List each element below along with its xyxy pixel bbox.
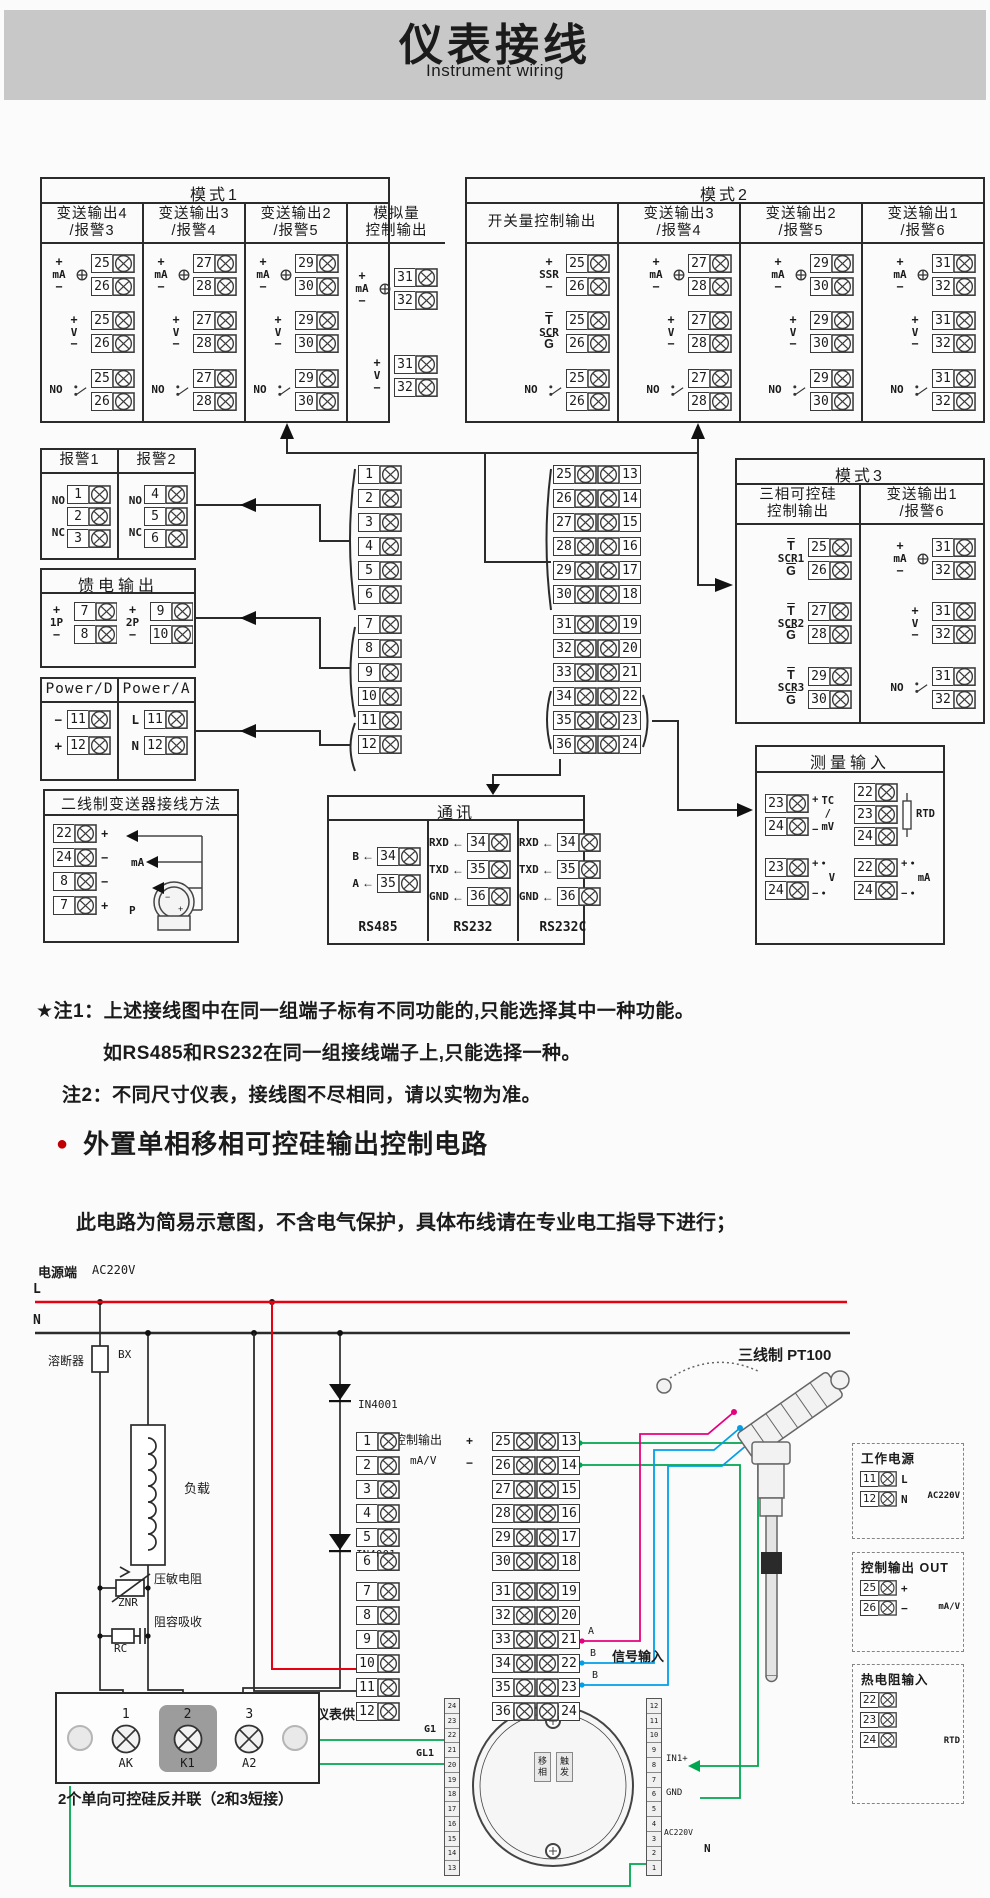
terminal-number: 34 xyxy=(557,833,578,852)
wire-symbol: +mA− xyxy=(764,256,792,294)
terminal-number: 34 xyxy=(377,847,398,866)
comm-row: RXD←34 xyxy=(429,833,511,852)
terminal-screw-icon xyxy=(214,277,237,296)
circuit-strip-right: 2513261427152816291730183119322033213422… xyxy=(492,1432,580,1726)
terminal-screw-icon xyxy=(953,392,976,411)
mode2-box: 模式2开关量控制输出+SSR−2526TSCRG2526NO2526变送输出3/… xyxy=(465,177,985,423)
terminal-number: 17 xyxy=(559,1528,580,1547)
strip-row: 1 xyxy=(356,1432,400,1451)
power-title: Power/D xyxy=(42,679,117,703)
board-pin: 22 xyxy=(445,1729,459,1744)
left-arrow-icon: ← xyxy=(542,836,554,850)
terminal: 25 xyxy=(566,311,610,330)
terminal-screw-icon xyxy=(587,254,610,273)
terminal-pair: 3220 xyxy=(492,1606,580,1625)
terminal-number: 23 xyxy=(559,1678,580,1697)
feed-group: +2P−910 xyxy=(119,602,194,644)
terminal: 32 xyxy=(394,291,438,310)
strip-row: 3523 xyxy=(553,711,641,730)
terminal: 29 xyxy=(810,311,854,330)
terminal-number: 23 xyxy=(765,858,786,877)
terminal-screw-icon xyxy=(597,639,620,658)
terminal-number: 8 xyxy=(356,1606,377,1625)
terminal: 28 xyxy=(688,334,732,353)
terminal-number: 13 xyxy=(559,1432,580,1451)
terminal: 32 xyxy=(932,277,976,296)
terminal-screw-icon xyxy=(165,710,188,729)
terminal-pair: 2715 xyxy=(492,1480,580,1499)
terminal-number: 30 xyxy=(492,1552,513,1571)
switch-icon xyxy=(792,384,807,397)
board-pin: 3 xyxy=(647,1832,661,1847)
terminal-number: 33 xyxy=(553,663,574,682)
varistor-code: ZNR xyxy=(118,1596,138,1609)
terminal: 10 xyxy=(150,625,194,644)
terminal-screw-icon xyxy=(74,824,97,843)
mode-column: 变送输出4/报警3+mA−2526+V−2526NO2526 xyxy=(42,204,144,421)
strip-row: 5 xyxy=(358,561,402,580)
in1-label: IN1+ xyxy=(666,1754,688,1764)
terminal: 5 xyxy=(144,507,188,526)
terminal-number: 18 xyxy=(620,585,641,604)
terminal-pair: 3624 xyxy=(492,1702,580,1721)
terminal-number: 31 xyxy=(492,1582,513,1601)
terminal-number: 22 xyxy=(53,824,74,843)
wiring-row: +V−2728 xyxy=(619,311,739,353)
terminal: 27 xyxy=(193,311,237,330)
wiring-row: +V−2728 xyxy=(144,311,244,353)
terminal-number: 32 xyxy=(932,625,953,644)
terminal-screw-icon xyxy=(878,1471,897,1487)
terminal-strip-left: 123456789101112 xyxy=(358,465,402,759)
wire-symbol: +V− xyxy=(363,357,391,395)
terminal: 24 xyxy=(765,881,809,900)
wire-symbol: +SSR− xyxy=(535,256,563,294)
pt100-label: 三线制 PT100 xyxy=(738,1344,831,1365)
terminal-screw-icon xyxy=(513,1432,536,1451)
page: 仪表接线 Instrument wiring 模式1变送输出4/报警3+mA−2… xyxy=(0,0,990,1898)
comm-row: GND←36 xyxy=(429,887,511,906)
line-n-label: N xyxy=(33,1313,41,1328)
box-title: 模式2 xyxy=(467,179,983,204)
terminal-screw-icon xyxy=(574,663,597,682)
terminal-number: 28 xyxy=(193,277,214,296)
current-source-icon xyxy=(795,269,807,281)
terminal-screw-icon xyxy=(214,254,237,273)
terminal-number: 25 xyxy=(492,1432,513,1451)
terminal-number: 27 xyxy=(193,254,214,273)
strip-row: 1 xyxy=(358,465,402,484)
terminal-screw-icon xyxy=(709,311,732,330)
terminal-screw-icon xyxy=(574,585,597,604)
wiring-row: +SSR−2526 xyxy=(467,254,617,296)
terminal: 22 xyxy=(854,858,898,877)
terminal-number: 10 xyxy=(150,625,171,644)
terminal: 3 xyxy=(356,1480,400,1499)
terminal-number: 18 xyxy=(559,1552,580,1571)
strip-row: 3119 xyxy=(553,615,641,634)
terminal-number: 19 xyxy=(620,615,641,634)
terminal-number: 23 xyxy=(765,794,786,813)
board-pin: 11 xyxy=(647,1714,661,1729)
board-pin: 19 xyxy=(445,1773,459,1788)
terminal-screw-icon xyxy=(597,615,620,634)
control-plus: + xyxy=(466,1434,473,1448)
terminal-number: 31 xyxy=(394,268,415,287)
terminal-screw-icon xyxy=(829,625,852,644)
strip-row: 8 xyxy=(356,1606,400,1625)
terminal-screw-icon xyxy=(415,268,438,287)
terminal: 30 xyxy=(808,690,852,709)
terminal-screw-icon xyxy=(597,663,620,682)
column-title: 模拟量控制输出 xyxy=(348,204,445,244)
terminal-number: 30 xyxy=(810,392,831,411)
panel-title: 热电阻输入 xyxy=(853,1665,963,1688)
terminal-screw-icon xyxy=(829,667,852,686)
terminal: 34 xyxy=(377,847,421,866)
terminal-screw-icon xyxy=(377,1654,400,1673)
terminal-pair: 3119 xyxy=(492,1582,580,1601)
terminal-screw-icon xyxy=(574,615,597,634)
wiring-row: +V−3132 xyxy=(863,311,983,353)
terminal: 9 xyxy=(150,602,194,621)
mode-columns: 三相可控硅控制输出TSCR1G2526TSCR2G2728TSCR3G2930变… xyxy=(737,485,983,722)
two-wire-body: 22+24−8−7+mAP−+ xyxy=(45,816,237,940)
scr-terminal-number: 1 xyxy=(97,1707,155,1722)
terminal-number: 35 xyxy=(467,860,488,879)
mode1-box: 模式1变送输出4/报警3+mA−2526+V−2526NO2526变送输出3/报… xyxy=(40,177,390,423)
terminal-number: 4 xyxy=(358,537,379,556)
terminal: 1 xyxy=(67,485,111,504)
two-wire-row: 7+ xyxy=(53,896,108,915)
terminal-number: 19 xyxy=(559,1582,580,1601)
terminal-number: 29 xyxy=(295,369,316,388)
section-heading: ●外置单相移相可控硅输出控制电路 xyxy=(56,1124,488,1161)
power-rows: −11+12 xyxy=(42,703,117,762)
terminal-screw-icon xyxy=(536,1504,559,1523)
terminal-pair: 3624 xyxy=(553,735,641,754)
switch-icon xyxy=(914,384,929,397)
terminal-screw-icon xyxy=(953,277,976,296)
strip-row: 3422 xyxy=(492,1654,580,1673)
terminal-number: 8 xyxy=(53,872,74,891)
terminal-screw-icon xyxy=(316,311,339,330)
terminal-screw-icon xyxy=(88,736,111,755)
wire-symbol: +V− xyxy=(657,314,685,352)
terminal-number: 15 xyxy=(620,513,641,532)
terminal-number: 10 xyxy=(358,687,379,706)
rtd-input: 222324RTD xyxy=(854,783,939,846)
two-wire-row: 24− xyxy=(53,848,108,867)
box-title: 模式3 xyxy=(737,460,983,485)
terminal: 30 xyxy=(810,277,854,296)
terminal-number: 21 xyxy=(559,1630,580,1649)
terminal-screw-icon xyxy=(953,369,976,388)
terminal-number: 12 xyxy=(144,736,165,755)
wiring-row: NO2930 xyxy=(246,369,346,411)
tc-mv-input: 2324+−TC/mV xyxy=(765,783,850,846)
terminal: 12 xyxy=(67,736,111,755)
comm-row: TXD←35 xyxy=(519,860,601,879)
terminal-number: 6 xyxy=(358,585,379,604)
power-row: L11 xyxy=(119,710,194,729)
strip-row: 2614 xyxy=(492,1456,580,1475)
terminal-screw-icon xyxy=(316,254,339,273)
terminal-number: 28 xyxy=(688,334,709,353)
terminal-pair: 3523 xyxy=(553,711,641,730)
terminal-number: 14 xyxy=(559,1456,580,1475)
terminal-number: 26 xyxy=(91,334,112,353)
terminal-screw-icon xyxy=(587,392,610,411)
terminal-screw-icon xyxy=(398,847,421,866)
alarm-body: NONC456 xyxy=(119,474,194,558)
terminal-pair: 3018 xyxy=(553,585,641,604)
terminal: 11 xyxy=(860,1471,897,1487)
terminal: 25 xyxy=(566,369,610,388)
terminal-number: 26 xyxy=(860,1600,878,1616)
terminal-number: 28 xyxy=(688,277,709,296)
signal-b1-label: B xyxy=(590,1648,596,1659)
wire-symbol: +V− xyxy=(779,314,807,352)
terminal-screw-icon xyxy=(316,369,339,388)
terminal-screw-icon xyxy=(74,872,97,891)
terminal-screw-icon xyxy=(377,1456,400,1475)
terminal: 34 xyxy=(467,833,511,852)
terminal: 24 xyxy=(860,1732,897,1748)
terminal-screw-icon xyxy=(415,378,438,397)
terminal-number: 9 xyxy=(150,602,171,621)
terminal-screw-icon xyxy=(953,334,976,353)
strip-row: 2513 xyxy=(492,1432,580,1451)
strip-row: 9 xyxy=(358,663,402,682)
terminal: 27 xyxy=(193,254,237,273)
trigger-board-drawing xyxy=(473,1706,633,1866)
line-l-label: L xyxy=(33,1282,41,1297)
terminal: 10 xyxy=(356,1654,400,1673)
wiring-row: +mA−2728 xyxy=(619,254,739,296)
terminal-number: 36 xyxy=(557,887,578,906)
terminal: 27 xyxy=(808,602,852,621)
panel-title: 工作电源 xyxy=(853,1444,963,1467)
terminal-number: 28 xyxy=(688,392,709,411)
wiring-row: +mA−2930 xyxy=(246,254,346,296)
terminal-screw-icon xyxy=(536,1456,559,1475)
terminal-screw-icon xyxy=(953,690,976,709)
mode-column: 变送输出3/报警4+mA−2728+V−2728NO2728 xyxy=(619,204,741,421)
terminal: 8 xyxy=(53,872,97,891)
terminal: 23 xyxy=(765,858,809,877)
signal-input-label: 信号输入 xyxy=(612,1646,664,1665)
terminal-screw-icon xyxy=(536,1582,559,1601)
terminal-number: 36 xyxy=(553,735,574,754)
terminal-number: 6 xyxy=(356,1552,377,1571)
terminal-screw-icon xyxy=(165,507,188,526)
terminal-number: 29 xyxy=(810,369,831,388)
terminal: 4 xyxy=(358,537,402,556)
terminal-screw-icon xyxy=(379,639,402,658)
note-1: ★注1：上述接线图中在同一组端子标有不同功能的,只能选择其中一种功能。 xyxy=(36,996,694,1023)
terminal-screw-icon xyxy=(316,334,339,353)
terminal: 28 xyxy=(688,277,732,296)
terminal-number: 29 xyxy=(295,311,316,330)
terminal-number: 28 xyxy=(808,625,829,644)
terminal: 31 xyxy=(932,602,976,621)
terminal: 4 xyxy=(144,485,188,504)
board-pin: 15 xyxy=(445,1832,459,1847)
terminal-number: 16 xyxy=(620,537,641,556)
terminal-number: 12 xyxy=(356,1702,377,1721)
measure-grid: 2324+−TC/mV222324RTD2324+ ●− ●V2224+ ●− … xyxy=(757,773,943,906)
bullet-icon: ● xyxy=(56,1133,69,1155)
board-text-2: 触发 xyxy=(556,1752,573,1782)
terminal-screw-icon xyxy=(513,1606,536,1625)
signal-b2-label: B xyxy=(592,1670,598,1681)
board-pin: 1 xyxy=(647,1861,661,1875)
strip-row: 3422 xyxy=(553,687,641,706)
terminal: 31 xyxy=(932,369,976,388)
current-source-icon xyxy=(76,269,88,281)
terminal-screw-icon xyxy=(112,392,135,411)
comm-rows: RXD←34TXD←35GND←36 xyxy=(429,821,517,918)
terminal-screw-icon xyxy=(574,489,597,508)
terminal-number: 25 xyxy=(91,311,112,330)
terminal-screw-icon xyxy=(709,277,732,296)
panel-terminal-row: 23 xyxy=(860,1712,963,1728)
strip-row: 12 xyxy=(356,1702,400,1721)
wiring-row: TSCRG2526 xyxy=(467,311,617,353)
terminal: 32 xyxy=(932,690,976,709)
terminal-number: 11 xyxy=(67,710,88,729)
wiring-row: TSCR1G2526 xyxy=(737,538,859,580)
measure-input-box: 测量输入2324+−TC/mV222324RTD2324+ ●− ●V2224+… xyxy=(755,745,945,945)
terminal-screw-icon xyxy=(536,1480,559,1499)
terminal-number: 31 xyxy=(932,538,953,557)
terminal-screw-icon xyxy=(88,529,111,548)
power-column: Power/D−11+12 xyxy=(42,679,119,779)
terminal-number: 28 xyxy=(492,1504,513,1523)
terminal-number: 30 xyxy=(810,334,831,353)
strip-row: 3321 xyxy=(492,1630,580,1649)
terminal-screw-icon xyxy=(513,1630,536,1649)
terminal: 28 xyxy=(193,392,237,411)
terminal-number: 1 xyxy=(358,465,379,484)
terminal-number: 26 xyxy=(492,1456,513,1475)
wire-symbol: NO xyxy=(883,384,911,396)
terminal-number: 4 xyxy=(356,1504,377,1523)
wiring-row: NO2930 xyxy=(741,369,861,411)
terminal: 28 xyxy=(808,625,852,644)
terminal: 24 xyxy=(53,848,97,867)
terminal-screw-icon xyxy=(709,369,732,388)
terminal-pair: 3523 xyxy=(492,1678,580,1697)
page-header: 仪表接线 Instrument wiring xyxy=(4,10,986,100)
terminal-number: 31 xyxy=(932,369,953,388)
wire-symbol: NO xyxy=(246,384,274,396)
column-title: 变送输出1/报警6 xyxy=(863,204,983,244)
terminal-number: 25 xyxy=(566,311,587,330)
terminal-screw-icon xyxy=(953,602,976,621)
terminal-number: 29 xyxy=(808,667,829,686)
wiring-row: TSCR3G2930 xyxy=(737,667,859,709)
column-rows: +mA−3132+V−3132NO3132 xyxy=(861,525,983,722)
terminal-number: 20 xyxy=(559,1606,580,1625)
terminal-screw-icon xyxy=(112,369,135,388)
terminal-screw-icon xyxy=(578,887,601,906)
rtd-input-panel: 热电阻输入 222324 RTD xyxy=(852,1664,964,1804)
board-pin: 20 xyxy=(445,1758,459,1773)
terminal-number: 25 xyxy=(566,369,587,388)
terminal: 12 xyxy=(144,736,188,755)
terminal-screw-icon xyxy=(536,1702,559,1721)
rtd-resistor-icon xyxy=(901,793,913,837)
box-title: 馈电输出 xyxy=(42,570,194,594)
terminal-screw-icon xyxy=(587,369,610,388)
terminal: 35 xyxy=(557,860,601,879)
current-source-icon xyxy=(673,269,685,281)
wire-symbol: +mA− xyxy=(348,270,376,308)
terminal-number: 31 xyxy=(932,311,953,330)
wire-symbol: NO xyxy=(517,384,545,396)
terminal-screw-icon xyxy=(536,1552,559,1571)
terminal-number: 3 xyxy=(358,513,379,532)
terminal-number: 27 xyxy=(193,369,214,388)
strip-row: 3220 xyxy=(553,639,641,658)
terminal-number: 5 xyxy=(144,507,165,526)
column-title: 变送输出3/报警4 xyxy=(144,204,244,244)
terminal-screw-icon xyxy=(513,1504,536,1523)
two-wire-row: 8− xyxy=(53,872,108,891)
terminal-number: 3 xyxy=(356,1480,377,1499)
wiring-row: +mA−3132 xyxy=(863,254,983,296)
terminal-number: 2 xyxy=(356,1456,377,1475)
terminal-screw-icon xyxy=(379,561,402,580)
wire-symbol: TSCR3G xyxy=(777,669,805,707)
terminal-number: 27 xyxy=(688,311,709,330)
terminal: 30 xyxy=(295,392,339,411)
terminal: 6 xyxy=(358,585,402,604)
board-pin: 16 xyxy=(445,1817,459,1832)
terminal: 8 xyxy=(358,639,402,658)
terminal-screw-icon xyxy=(597,537,620,556)
wiring-row: NO3132 xyxy=(861,667,983,709)
column-title: 三相可控硅控制输出 xyxy=(737,485,859,525)
varistor-label: 压敏电阻 xyxy=(154,1570,202,1587)
comm-column: B←34A←35RS485 xyxy=(329,821,429,941)
terminal-number: 34 xyxy=(492,1654,513,1673)
terminal-screw-icon xyxy=(574,537,597,556)
alarm-box: 报警1NONC123报警2NONC456 xyxy=(40,448,196,560)
wiring-row: +V−3132 xyxy=(348,355,445,397)
terminal-number: 30 xyxy=(295,392,316,411)
terminal-number: 30 xyxy=(810,277,831,296)
terminal-number: 27 xyxy=(688,369,709,388)
svg-text:+: + xyxy=(178,904,183,914)
terminal-screw-icon xyxy=(513,1582,536,1601)
terminal-screw-icon xyxy=(829,561,852,580)
terminal-number: 36 xyxy=(467,887,488,906)
terminal-screw-icon xyxy=(74,896,97,915)
comm-rows: B←34A←35 xyxy=(329,821,427,918)
ma-input: 2224+ ●− ●mA xyxy=(854,858,939,900)
terminal-screw-icon xyxy=(878,1491,897,1507)
terminal-number: 26 xyxy=(566,392,587,411)
terminal: 26 xyxy=(566,277,610,296)
terminal-number: 11 xyxy=(144,710,165,729)
terminal: 7 xyxy=(356,1582,400,1601)
terminal-screw-icon xyxy=(831,392,854,411)
terminal-screw-icon xyxy=(488,887,511,906)
wiring-row: +mA−3132 xyxy=(861,538,983,580)
